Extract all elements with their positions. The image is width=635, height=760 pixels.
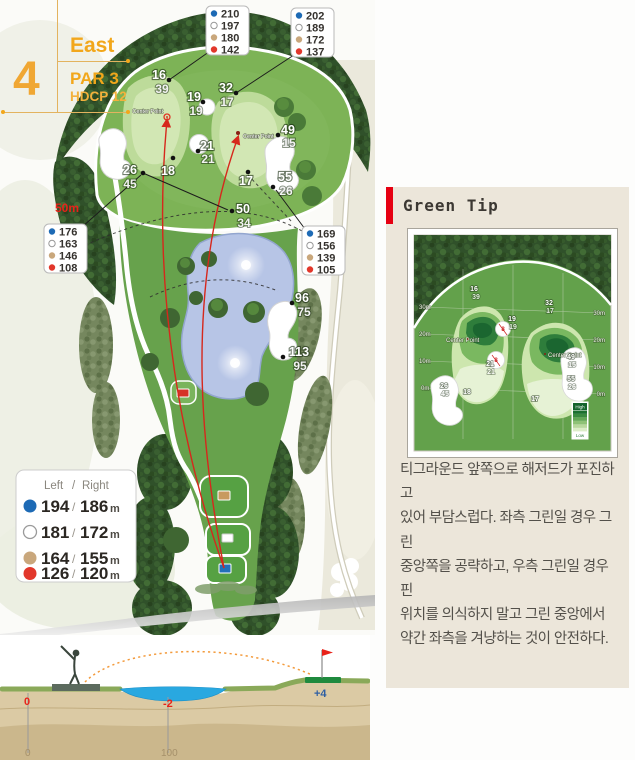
svg-text:55: 55 [567,376,575,383]
rule-dot [126,59,130,63]
label-45: 45 [123,177,137,191]
elev-water: -2 [163,698,173,710]
label-17: 17 [239,174,253,188]
label-17b: 17 [220,95,234,109]
tee-dist-unit: m [110,529,120,541]
fifty-meter-label: 50m [55,201,79,215]
center-point-label-left: Center Point [132,109,163,115]
label-34: 34 [237,216,251,230]
blue-tee-marker [219,564,231,573]
elev-tee: 0 [24,696,30,708]
svg-text:10m: 10m [593,365,605,371]
svg-text:17: 17 [531,396,539,403]
label-96: 96 [295,291,309,305]
svg-text:21: 21 [487,369,495,376]
inset-center-point-right: Center Point [548,353,582,359]
tip-line: 있어 부담스럽다. 좌측 그린일 경우 그린 [400,506,620,554]
tip-line: 티그라운드 앞쪽으로 해저드가 포진하고 [400,458,620,506]
legend-value: 142 [221,45,239,57]
legend-value: 169 [317,229,335,241]
green-tip-panel: Green Tip [386,187,629,688]
legend-value: 180 [221,33,239,45]
legend-value: 156 [317,241,335,253]
label-21b: 21 [201,152,215,166]
tee-legend-right-header: Right [82,480,110,492]
center-point-label-right: Center Point [243,134,274,140]
svg-text:19: 19 [509,324,517,331]
tee-legend-left-header: Left [44,480,64,492]
legend-value: 139 [317,253,335,265]
svg-text:21: 21 [486,361,494,368]
svg-text:49: 49 [567,354,575,361]
label-32: 32 [219,81,233,95]
dist-mid: 100 [161,748,178,759]
green-tip-inset: 8 8 Center Point Center Point 16 39 32 1… [407,228,618,458]
green-tip-inset-image: 8 8 Center Point Center Point 16 39 32 1… [408,229,617,457]
white-tee-marker [222,534,233,542]
legend-top-left: 210 197 180 142 [206,6,249,57]
svg-text:26: 26 [568,384,576,391]
green-tip-title: Green Tip [403,196,499,215]
legend-value: 105 [317,265,335,277]
label-26b: 26 [279,184,293,198]
tee-dist-right: 186 [80,497,108,516]
profile-tee-pad [52,684,100,691]
green-tip-text: 티그라운드 앞쪽으로 해저드가 포진하고 있어 부담스럽다. 좌측 그린일 경우… [400,458,620,652]
dist-start: 0 [25,748,31,759]
hdcp-label: HDCP 12 [70,89,127,104]
tip-line: 위치를 의식하지 말고 그린 중앙에서 [400,603,620,627]
svg-text:20m: 20m [419,332,431,338]
label-75: 75 [297,305,311,319]
label-19: 19 [187,90,201,104]
elev-green: +4 [314,688,327,700]
legend-value: 137 [306,47,324,59]
legend-mid-right: 169 156 139 105 [302,226,345,277]
svg-text:17: 17 [546,308,554,315]
svg-text:19: 19 [508,316,516,323]
tan-tee-marker [218,491,230,500]
label-21: 21 [200,139,214,153]
label-55: 55 [278,170,292,184]
rule-dot [1,110,5,114]
scale-high: High [575,405,585,410]
legend-value: 146 [59,251,77,263]
legend-top-right: 202 189 172 137 [291,8,334,59]
tip-line: 약간 좌측을 겨냥하는 것이 안전하다. [400,627,620,651]
svg-text:30m: 30m [419,305,431,311]
profile-green-pad [305,677,341,683]
svg-text:10m: 10m [419,359,431,365]
elevation-profile: 0 -2 +4 0 100 [0,635,370,760]
label-19b: 19 [189,104,203,118]
par-label: PAR 3 [70,69,119,89]
label-95: 95 [293,359,307,373]
legend-value: 210 [221,9,239,21]
legend-value: 176 [59,227,77,239]
inset-center-point-left: Center Point [446,338,480,344]
label-16: 16 [152,68,166,82]
legend-mid-left: 176 163 146 108 [44,224,87,275]
tee-dist-right: 172 [80,523,108,542]
tee-dist-unit: m [110,570,120,582]
tee-dist-right: 120 [80,564,108,583]
hole-number: 4 [13,56,40,104]
earth-lower [0,724,370,760]
label-113: 113 [289,345,309,359]
svg-text:0m: 0m [597,392,605,398]
tee-dist-left: 126 [41,564,69,583]
tip-accent-bar [386,187,393,224]
svg-text:18: 18 [463,389,471,396]
label-15: 15 [282,136,296,150]
svg-text:15: 15 [568,362,576,369]
svg-text:16: 16 [470,286,478,293]
inset-elevation-scale: High Low [572,402,588,439]
tee-dist-unit: m [110,503,120,515]
svg-text:45: 45 [441,391,449,398]
header-rule-east [58,61,128,62]
svg-text:26: 26 [440,383,448,390]
svg-text:20m: 20m [593,338,605,344]
svg-text:32: 32 [545,300,553,307]
course-name: East [70,34,114,58]
legend-value: 108 [59,263,77,275]
svg-text:39: 39 [472,294,480,301]
svg-text:30m: 30m [593,311,605,317]
label-50: 50 [236,202,250,216]
tee-distance-legend: Left / Right 194 / 186 m 181 / 172 m 164… [16,470,136,583]
label-39: 39 [155,82,169,96]
rule-dot [126,110,130,114]
tee-dist-unit: m [110,555,120,567]
legend-value: 197 [221,21,239,33]
legend-value: 163 [59,239,77,251]
label-49: 49 [281,123,295,137]
tee-dist-left: 194 [41,497,70,516]
label-26: 26 [123,163,137,177]
svg-text:0m: 0m [421,386,429,392]
header-rule-bottom [4,112,128,113]
header-vertical-rule [57,0,58,113]
tee-dist-left: 181 [41,523,69,542]
page: Center Point Center Point 50m 16 39 32 1… [0,0,635,760]
tip-line: 중앙쪽을 공략하고, 우측 그린일 경우 핀 [400,555,620,603]
label-18: 18 [161,164,175,178]
legend-value: 189 [306,23,324,35]
legend-value: 202 [306,11,324,23]
scale-low: Low [576,433,585,438]
legend-value: 172 [306,35,324,47]
